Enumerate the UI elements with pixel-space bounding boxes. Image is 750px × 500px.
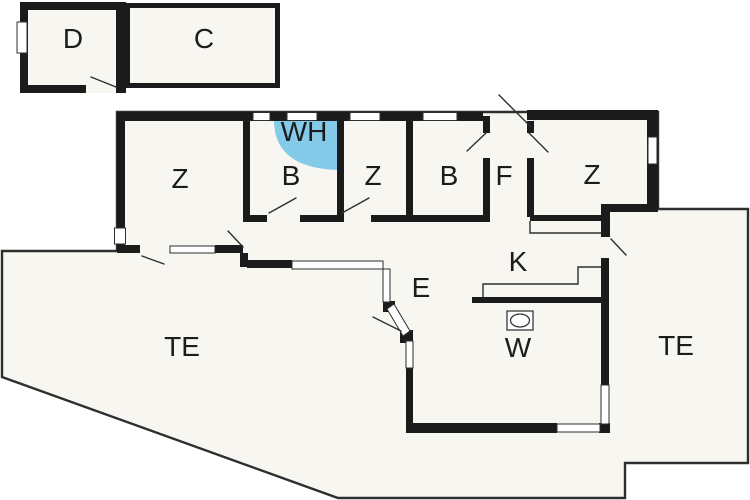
room-label-e: E <box>412 272 431 303</box>
window <box>648 137 657 164</box>
terrace-label-right: TE <box>658 330 694 361</box>
window <box>557 424 600 432</box>
room-label-b2: B <box>440 160 459 191</box>
window <box>601 385 609 424</box>
washer-drum <box>511 314 530 327</box>
window <box>253 113 270 121</box>
floor-plan: D C Z WH B Z B F Z E K W TE TE <box>0 0 750 500</box>
room-label-c: C <box>194 23 214 54</box>
room-label-z1: Z <box>171 163 188 194</box>
window <box>115 228 126 244</box>
room-label-f: F <box>495 160 512 191</box>
terrace-label-left: TE <box>164 331 200 362</box>
room-label-wh: WH <box>281 116 328 147</box>
room-label-k: K <box>509 246 528 277</box>
room-label-z2: Z <box>364 160 381 191</box>
window <box>406 341 413 368</box>
room-label-d: D <box>63 23 83 54</box>
room-label-w: W <box>505 332 532 363</box>
floor-plan-canvas: D C Z WH B Z B F Z E K W TE TE <box>0 0 750 500</box>
room-label-z3: Z <box>583 159 600 190</box>
window <box>170 246 215 253</box>
window <box>292 261 383 269</box>
room-label-b1: B <box>282 160 301 191</box>
window <box>423 113 457 121</box>
window <box>350 113 380 121</box>
window <box>17 22 27 53</box>
washer-icon <box>507 311 533 330</box>
window <box>383 269 390 302</box>
